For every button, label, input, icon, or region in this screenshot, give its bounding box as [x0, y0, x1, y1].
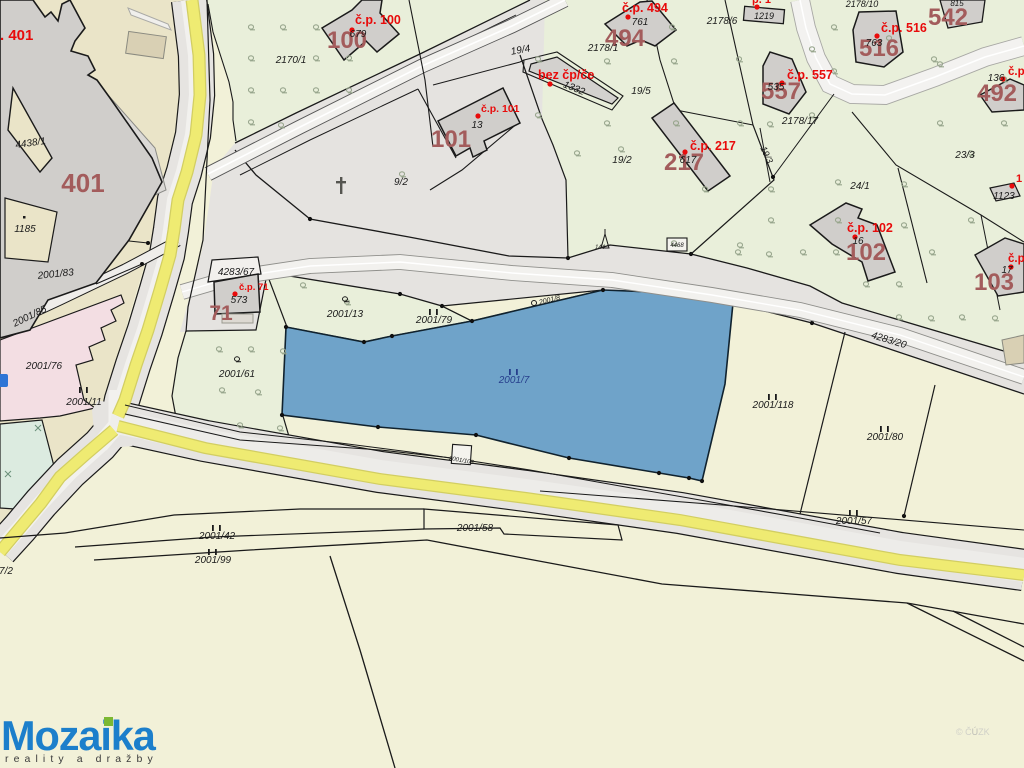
svg-text:2178/17: 2178/17	[781, 116, 819, 127]
svg-text:492: 492	[977, 80, 1017, 107]
svg-text:2178/6: 2178/6	[706, 16, 738, 27]
svg-text:2001/42: 2001/42	[198, 531, 236, 542]
svg-text:101: 101	[431, 126, 471, 153]
svg-text:9/2: 9/2	[394, 177, 408, 188]
svg-text:617: 617	[680, 155, 697, 166]
svg-text:č.p. 516: č.p. 516	[881, 21, 927, 35]
svg-text:2001/61: 2001/61	[218, 369, 255, 380]
svg-text:2001/79: 2001/79	[415, 315, 453, 326]
svg-text:71: 71	[209, 302, 233, 325]
svg-text:7/2: 7/2	[0, 566, 13, 577]
svg-text:2001/99: 2001/99	[194, 555, 232, 566]
svg-text:2178/10: 2178/10	[845, 0, 879, 9]
svg-text:2001/76: 2001/76	[25, 361, 63, 372]
svg-text:24/1: 24/1	[849, 181, 869, 192]
svg-text:4468: 4468	[670, 243, 684, 249]
svg-text:2001/7: 2001/7	[498, 375, 530, 386]
svg-text:© ČÚZK: © ČÚZK	[956, 727, 990, 737]
svg-text:2001/57: 2001/57	[835, 516, 873, 527]
svg-text:763: 763	[866, 38, 883, 49]
svg-text:761: 761	[632, 17, 649, 28]
svg-text:reality a dražby: reality a dražby	[5, 753, 158, 765]
svg-text:Mozaika: Mozaika	[1, 712, 157, 759]
svg-text:13: 13	[471, 120, 483, 131]
svg-text:2001/11: 2001/11	[65, 397, 101, 408]
svg-text:2001/118: 2001/118	[752, 400, 794, 411]
svg-text:1219: 1219	[754, 11, 774, 21]
svg-text:144: 144	[595, 245, 606, 251]
svg-text:č.p. 102: č.p. 102	[847, 221, 893, 235]
svg-text:19/5: 19/5	[631, 86, 651, 97]
svg-text:2001/58: 2001/58	[456, 523, 494, 534]
svg-text:č.p: č.p	[1008, 253, 1024, 265]
svg-text:č.p. 557: č.p. 557	[787, 68, 833, 82]
svg-text:679: 679	[350, 29, 367, 40]
svg-text:573: 573	[231, 295, 248, 306]
svg-text:. 401: . 401	[0, 27, 33, 44]
svg-text:535: 535	[768, 82, 785, 93]
svg-text:401: 401	[61, 168, 104, 198]
svg-text:2001/13: 2001/13	[326, 309, 364, 320]
svg-text:17: 17	[1001, 265, 1013, 276]
svg-text:č.p. 217: č.p. 217	[690, 139, 736, 153]
svg-text:1123: 1123	[993, 191, 1015, 202]
svg-text:136: 136	[988, 73, 1005, 84]
svg-text:č.p. 101: č.p. 101	[481, 103, 520, 115]
svg-text:č.p. 71: č.p. 71	[239, 282, 269, 293]
svg-text:2170/1: 2170/1	[275, 55, 307, 66]
svg-text:1: 1	[1016, 173, 1022, 185]
svg-text:2001/80: 2001/80	[866, 432, 904, 443]
svg-text:16: 16	[852, 236, 864, 247]
svg-text:č.p: č.p	[1008, 66, 1024, 78]
svg-text:4283/67: 4283/67	[218, 267, 255, 278]
svg-text:č.p. 100: č.p. 100	[355, 13, 401, 27]
svg-text:23/3: 23/3	[954, 150, 975, 161]
svg-text:1185: 1185	[14, 224, 36, 235]
svg-text:č.p. 494: č.p. 494	[622, 1, 668, 15]
svg-text:542: 542	[928, 4, 968, 31]
svg-text:19/2: 19/2	[612, 155, 632, 166]
svg-text:2178/1: 2178/1	[587, 43, 619, 54]
svg-text:815: 815	[950, 0, 964, 8]
svg-text:p. 1: p. 1	[752, 0, 771, 6]
